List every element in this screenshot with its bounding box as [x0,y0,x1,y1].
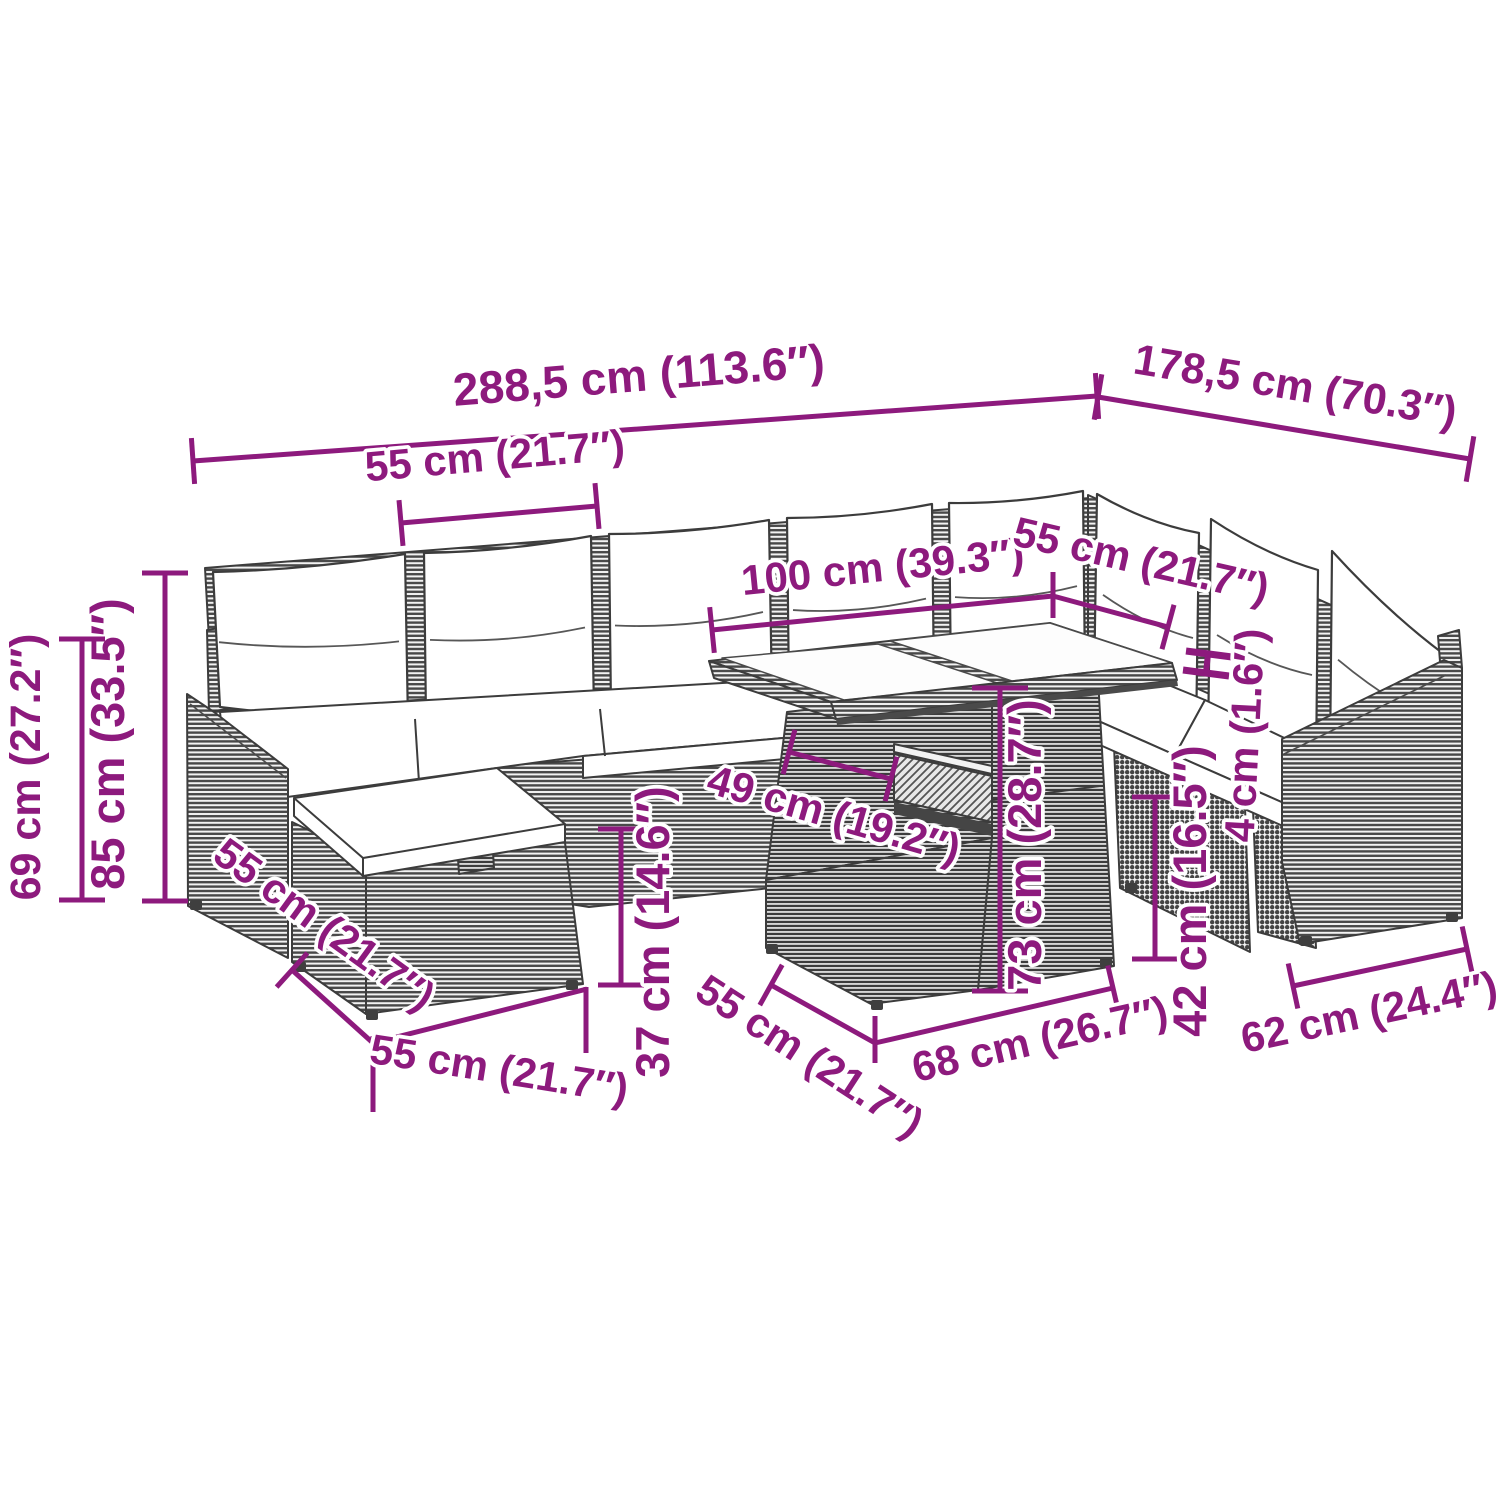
svg-text:73 cm (28.7″): 73 cm (28.7″) [998,699,1051,991]
svg-text:69 cm (27.2″): 69 cm (27.2″) [2,634,50,901]
svg-text:42 cm (16.5″): 42 cm (16.5″) [1163,745,1216,1037]
svg-text:85 cm (33.5″): 85 cm (33.5″) [81,598,134,890]
svg-text:37 cm (14.6″): 37 cm (14.6″) [626,786,679,1078]
